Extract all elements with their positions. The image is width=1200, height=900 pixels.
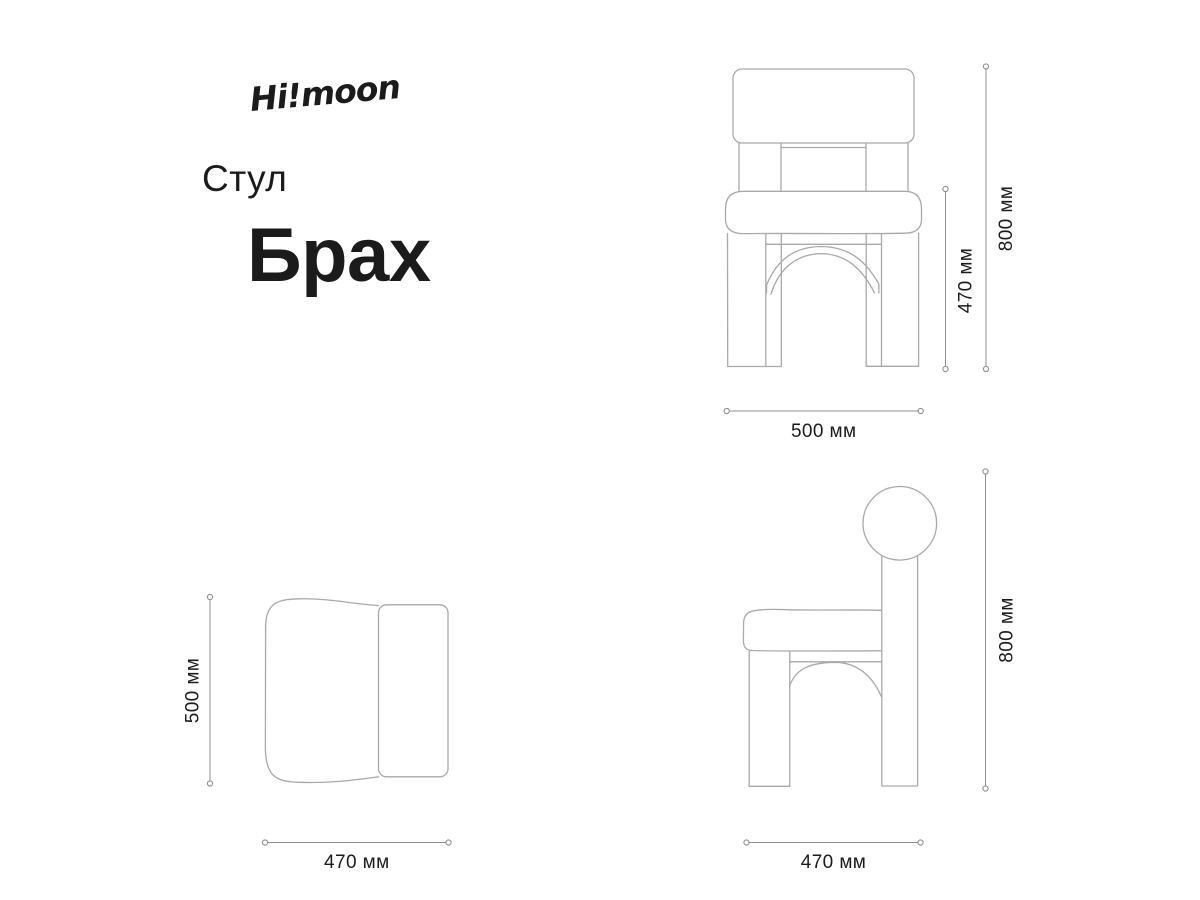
side-back-post-outline	[882, 555, 918, 786]
side-arch-curve	[790, 662, 882, 697]
top-backrest-outline	[379, 605, 449, 777]
top-seat-outline	[265, 599, 378, 783]
front-backrest-outline	[733, 69, 914, 143]
technical-drawing-canvas: 800 мм 470 мм 500 мм 500 мм 470 мм	[0, 0, 1200, 900]
dimension-endpoint-dot	[983, 366, 988, 371]
dimension-endpoint-dot	[446, 840, 451, 845]
front-seat-outline	[726, 191, 922, 233]
dimension-endpoint-dot	[207, 781, 212, 786]
dimension-endpoint-dot	[943, 186, 948, 191]
front-left-leg-outline	[728, 234, 782, 367]
front-view	[726, 69, 922, 367]
side-depth-dimension-label: 470 мм	[801, 852, 867, 873]
dimension-endpoint-dot	[207, 594, 212, 599]
side-headrest-circle-outline	[863, 487, 937, 561]
dimension-endpoint-dot	[983, 469, 988, 474]
product-dimension-sheet: Hi!moon Стул Брах 800 мм 470 мм	[0, 0, 1200, 900]
side-height-dimension-label: 800 мм	[997, 597, 1018, 663]
dimension-endpoint-dot	[943, 366, 948, 371]
front-right-leg-outline	[866, 233, 918, 366]
dimension-endpoint-dot	[724, 408, 729, 413]
front-width-dimension-label: 500 мм	[791, 421, 857, 442]
top-view	[265, 599, 448, 783]
dimension-endpoint-dot	[744, 840, 749, 845]
dimension-endpoint-dot	[262, 840, 267, 845]
front-left-post-outline	[739, 143, 781, 191]
side-front-leg-outline	[749, 651, 790, 786]
front-seat-height-dimension-label: 470 мм	[956, 248, 977, 314]
side-view	[743, 487, 936, 787]
dimension-endpoint-dot	[918, 408, 923, 413]
front-height-dimension-label: 800 мм	[996, 186, 1017, 252]
front-right-post-outline	[866, 143, 908, 191]
side-seat-outline	[743, 609, 881, 651]
top-width-dimension-label: 470 мм	[324, 852, 390, 873]
dimension-endpoint-dot	[983, 786, 988, 791]
dimension-endpoint-dot	[918, 840, 923, 845]
top-depth-dimension-label: 500 мм	[183, 658, 204, 724]
dimension-endpoint-dot	[983, 64, 988, 69]
